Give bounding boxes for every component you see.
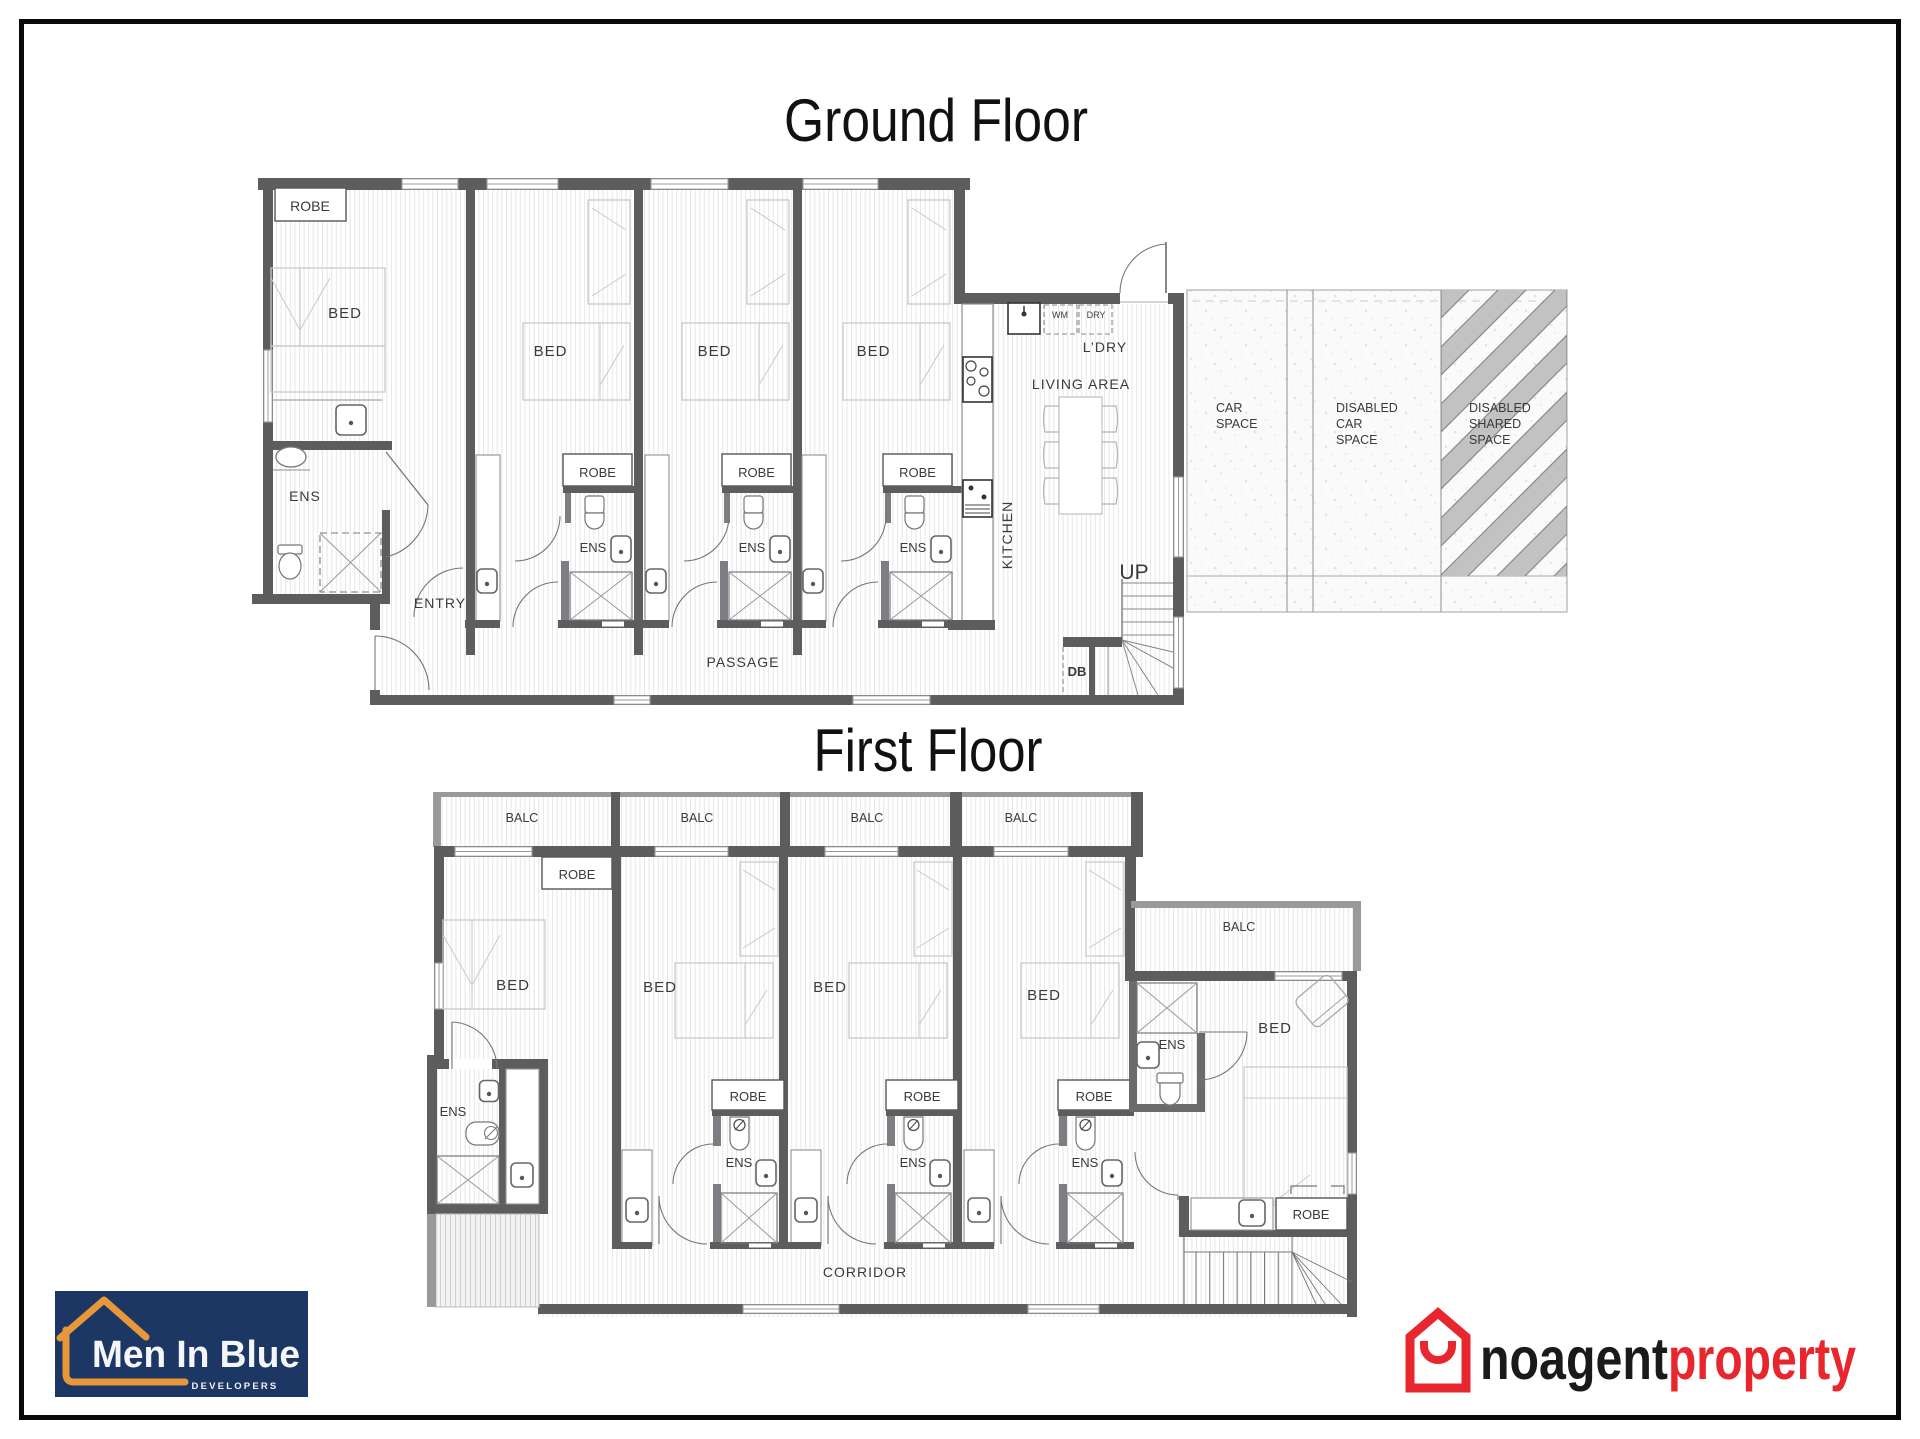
- svg-text:DISABLED: DISABLED: [1336, 401, 1398, 415]
- svg-text:ROBE: ROBE: [1293, 1207, 1330, 1222]
- svg-text:Ground Floor: Ground Floor: [784, 87, 1088, 154]
- svg-text:ROBE: ROBE: [559, 867, 596, 882]
- svg-text:UP: UP: [1119, 561, 1148, 584]
- svg-text:ROBE: ROBE: [730, 1089, 767, 1104]
- svg-text:WM: WM: [1052, 310, 1068, 320]
- svg-text:ENS: ENS: [739, 540, 766, 555]
- svg-text:ROBE: ROBE: [738, 465, 775, 480]
- svg-text:DEVELOPERS: DEVELOPERS: [192, 1381, 279, 1392]
- svg-text:DRY: DRY: [1087, 310, 1106, 320]
- svg-text:BALC: BALC: [851, 811, 884, 825]
- svg-text:BALC: BALC: [681, 811, 714, 825]
- svg-text:BALC: BALC: [506, 811, 539, 825]
- svg-text:noagent: noagent: [1480, 1326, 1668, 1392]
- svg-text:KITCHEN: KITCHEN: [999, 501, 1015, 569]
- svg-text:SHARED: SHARED: [1469, 417, 1521, 431]
- svg-text:ENS: ENS: [289, 488, 321, 504]
- svg-text:BED: BED: [496, 977, 530, 994]
- svg-text:SPACE: SPACE: [1469, 433, 1510, 447]
- svg-text:SPACE: SPACE: [1216, 417, 1257, 431]
- svg-text:ROBE: ROBE: [899, 465, 936, 480]
- svg-text:DB: DB: [1068, 664, 1087, 679]
- svg-text:ENTRY: ENTRY: [414, 595, 466, 611]
- svg-text:CAR: CAR: [1336, 417, 1362, 431]
- svg-text:ENS: ENS: [900, 540, 927, 555]
- svg-text:BED: BED: [534, 343, 568, 360]
- svg-text:BED: BED: [1258, 1020, 1292, 1037]
- svg-text:ROBE: ROBE: [290, 198, 330, 214]
- svg-text:LIVING AREA: LIVING AREA: [1032, 376, 1130, 392]
- svg-text:ENS: ENS: [900, 1155, 927, 1170]
- svg-text:BED: BED: [1027, 987, 1061, 1004]
- svg-text:CAR: CAR: [1216, 401, 1242, 415]
- svg-text:ROBE: ROBE: [904, 1089, 941, 1104]
- svg-text:BED: BED: [813, 979, 847, 996]
- svg-text:PASSAGE: PASSAGE: [707, 654, 780, 670]
- svg-text:BALC: BALC: [1005, 811, 1038, 825]
- svg-text:BED: BED: [857, 343, 891, 360]
- svg-text:ROBE: ROBE: [579, 465, 616, 480]
- svg-text:BALC: BALC: [1223, 920, 1256, 934]
- svg-text:SPACE: SPACE: [1336, 433, 1377, 447]
- svg-text:ENS: ENS: [1159, 1037, 1186, 1052]
- svg-text:property: property: [1668, 1326, 1856, 1392]
- svg-text:DISABLED: DISABLED: [1469, 401, 1531, 415]
- svg-text:ENS: ENS: [726, 1155, 753, 1170]
- svg-text:CORRIDOR: CORRIDOR: [823, 1264, 907, 1280]
- svg-text:ENS: ENS: [1072, 1155, 1099, 1170]
- svg-text:ENS: ENS: [440, 1104, 467, 1119]
- svg-text:Men In Blue: Men In Blue: [92, 1334, 300, 1376]
- svg-text:BED: BED: [698, 343, 732, 360]
- svg-text:ENS: ENS: [580, 540, 607, 555]
- svg-text:First Floor: First Floor: [814, 717, 1043, 784]
- svg-text:BED: BED: [328, 305, 362, 322]
- svg-text:BED: BED: [643, 979, 677, 996]
- svg-text:L’DRY: L’DRY: [1083, 339, 1127, 355]
- svg-text:ROBE: ROBE: [1076, 1089, 1113, 1104]
